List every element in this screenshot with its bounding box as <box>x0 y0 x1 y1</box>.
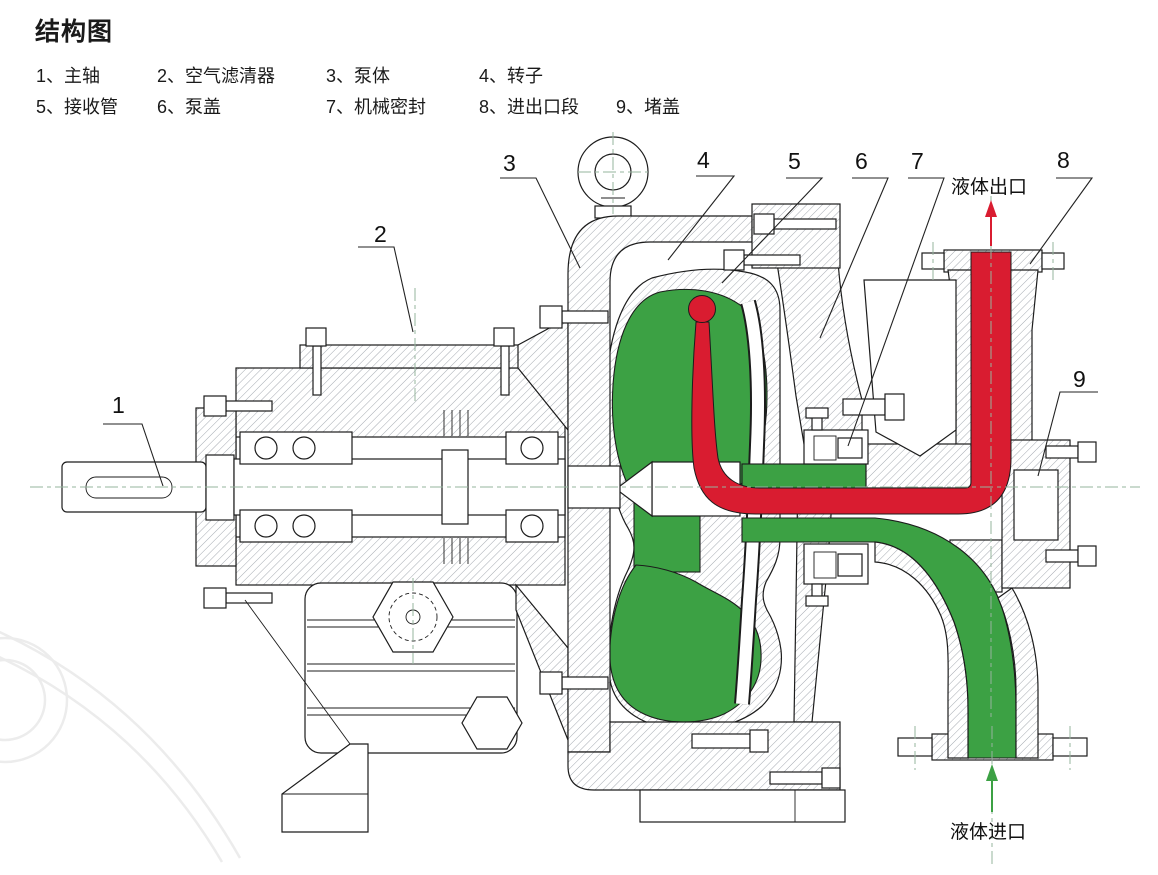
legend-item-6: 6、泵盖 <box>157 93 221 119</box>
plug-cover <box>1002 440 1096 588</box>
mechanical-seal-lower <box>804 544 868 606</box>
legend-item-2: 2、空气滤清器 <box>157 62 275 88</box>
pitot-tube-tip <box>689 296 716 323</box>
callout-number-1: 1 <box>112 392 125 419</box>
casing-cover-cavity <box>864 280 956 456</box>
legend-item-1: 1、主轴 <box>36 62 100 88</box>
legend-item-3: 3、泵体 <box>326 62 390 88</box>
watermark-arcs <box>0 630 240 862</box>
callout-number-3: 3 <box>503 150 516 177</box>
callout-number-9: 9 <box>1073 366 1086 393</box>
pump-cross-section-drawing <box>0 0 1158 875</box>
callout-number-8: 8 <box>1057 147 1070 174</box>
chamber-passage-upper <box>742 464 886 488</box>
callout-number-7: 7 <box>911 148 924 175</box>
structure-diagram-page: { "title": "结构图", "legend": { "row1": ["… <box>0 0 1158 875</box>
callout-number-6: 6 <box>855 148 868 175</box>
liquid-outlet-label: 液体出口 <box>951 172 1027 199</box>
legend-item-4: 4、转子 <box>479 62 543 88</box>
liquid-inlet-label: 液体进口 <box>950 817 1026 844</box>
page-title: 结构图 <box>35 12 113 48</box>
legend-item-7: 7、机械密封 <box>326 93 426 119</box>
callout-number-4: 4 <box>697 147 710 174</box>
callout-number-5: 5 <box>788 148 801 175</box>
outlet-flow-arrow <box>985 200 997 246</box>
inlet-flow-arrow <box>986 764 998 812</box>
legend-item-8: 8、进出口段 <box>479 93 579 119</box>
legend-item-9: 9、堵盖 <box>616 93 680 119</box>
legend-item-5: 5、接收管 <box>36 93 118 119</box>
callout-number-2: 2 <box>374 221 387 248</box>
